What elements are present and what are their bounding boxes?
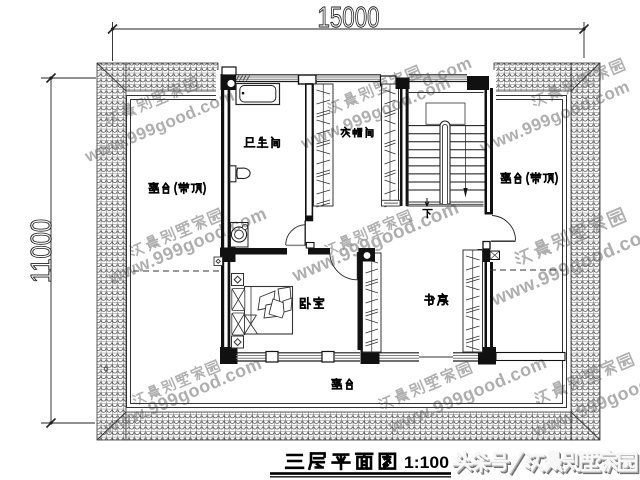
svg-text:15000: 15000 [318,2,380,34]
svg-text:11000: 11000 [26,219,58,283]
svg-text:www.999good.com: www.999good.com [487,221,640,311]
svg-text:1:100: 1:100 [404,453,449,472]
